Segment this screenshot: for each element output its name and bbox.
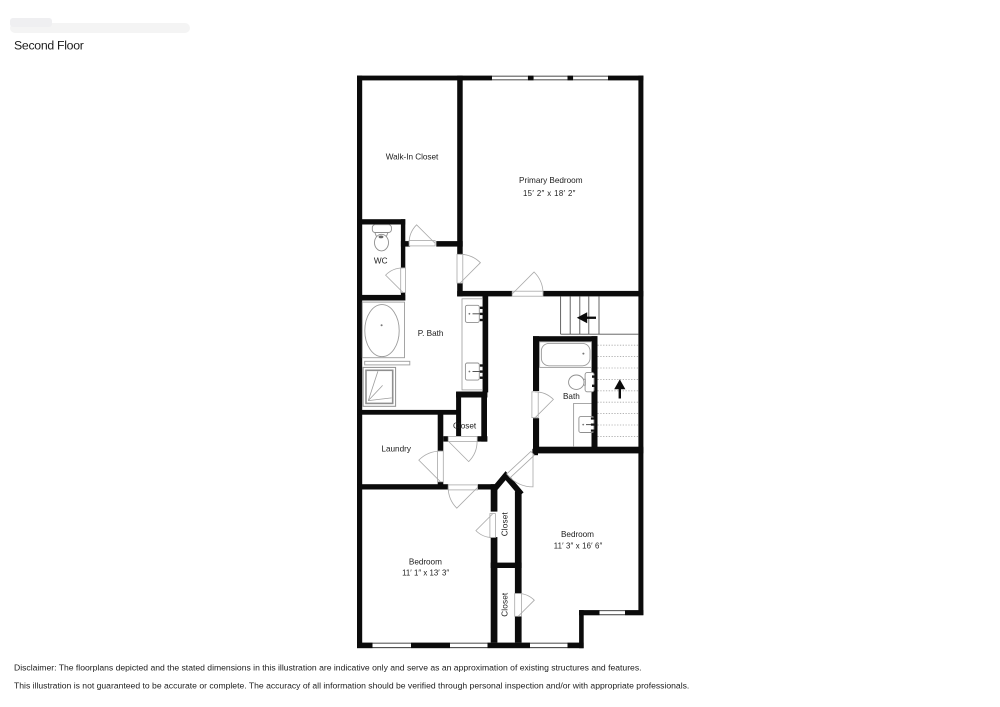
svg-text:Laundry: Laundry xyxy=(381,444,411,453)
svg-text:Closet: Closet xyxy=(453,421,477,430)
svg-text:P. Bath: P. Bath xyxy=(418,329,444,338)
svg-text:Disclaimer: The floorplans dep: Disclaimer: The floorplans depicted and … xyxy=(14,662,642,672)
svg-text:Bedroom: Bedroom xyxy=(409,558,442,567)
svg-text:Walk-In Closet: Walk-In Closet xyxy=(386,153,439,162)
svg-text:WC: WC xyxy=(374,256,388,265)
svg-text:Second Floor: Second Floor xyxy=(14,38,84,52)
svg-text:Closet: Closet xyxy=(500,512,509,537)
svg-text:Primary Bedroom: Primary Bedroom xyxy=(519,176,583,185)
svg-text:11′ 1″ x 13′ 3″: 11′ 1″ x 13′ 3″ xyxy=(402,568,449,577)
svg-text:Bedroom: Bedroom xyxy=(561,530,594,539)
svg-text:15′ 2″ x 18′ 2″: 15′ 2″ x 18′ 2″ xyxy=(523,189,576,198)
svg-text:This illustration is not guara: This illustration is not guaranteed to b… xyxy=(14,680,689,690)
svg-text:11′ 3″ x 16′ 6″: 11′ 3″ x 16′ 6″ xyxy=(554,542,603,551)
svg-text:Bath: Bath xyxy=(563,392,580,401)
svg-text:Closet: Closet xyxy=(500,592,509,617)
